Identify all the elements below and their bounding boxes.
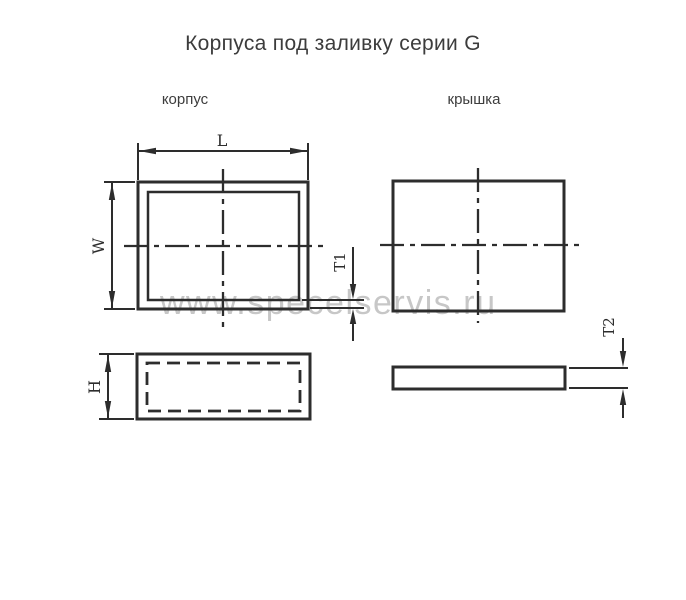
drawing-page: Корпуса под заливку серии G корпус крышк… [0,0,686,600]
arrow-down-icon [620,351,626,367]
lid-side-rect [393,367,565,389]
body-side-view [137,354,310,419]
arrow-down-icon [350,284,356,299]
body-side-rect [137,354,310,419]
lid-top-view [380,168,581,323]
dimension-T1: T1 [302,247,364,341]
arrow-left-icon [139,148,156,154]
dim-T2-label: T2 [600,317,618,337]
arrow-down-icon [109,291,115,308]
dim-T1-label: T1 [331,252,349,272]
lid-side-view [393,367,565,389]
arrow-up-icon [620,389,626,405]
dimension-H: H [85,354,134,419]
arrow-up-icon [350,309,356,324]
dim-H-label: H [85,380,104,394]
arrow-up-icon [105,355,111,372]
dim-L-label: L [217,131,228,150]
body-top-view [124,169,325,327]
body-side-hidden-rect [147,363,300,411]
dim-W-label: W [89,237,108,254]
technical-drawing: L W T1 [0,0,686,600]
arrow-right-icon [290,148,307,154]
arrow-up-icon [109,183,115,200]
dimension-T2: T2 [569,317,628,418]
arrow-down-icon [105,401,111,418]
